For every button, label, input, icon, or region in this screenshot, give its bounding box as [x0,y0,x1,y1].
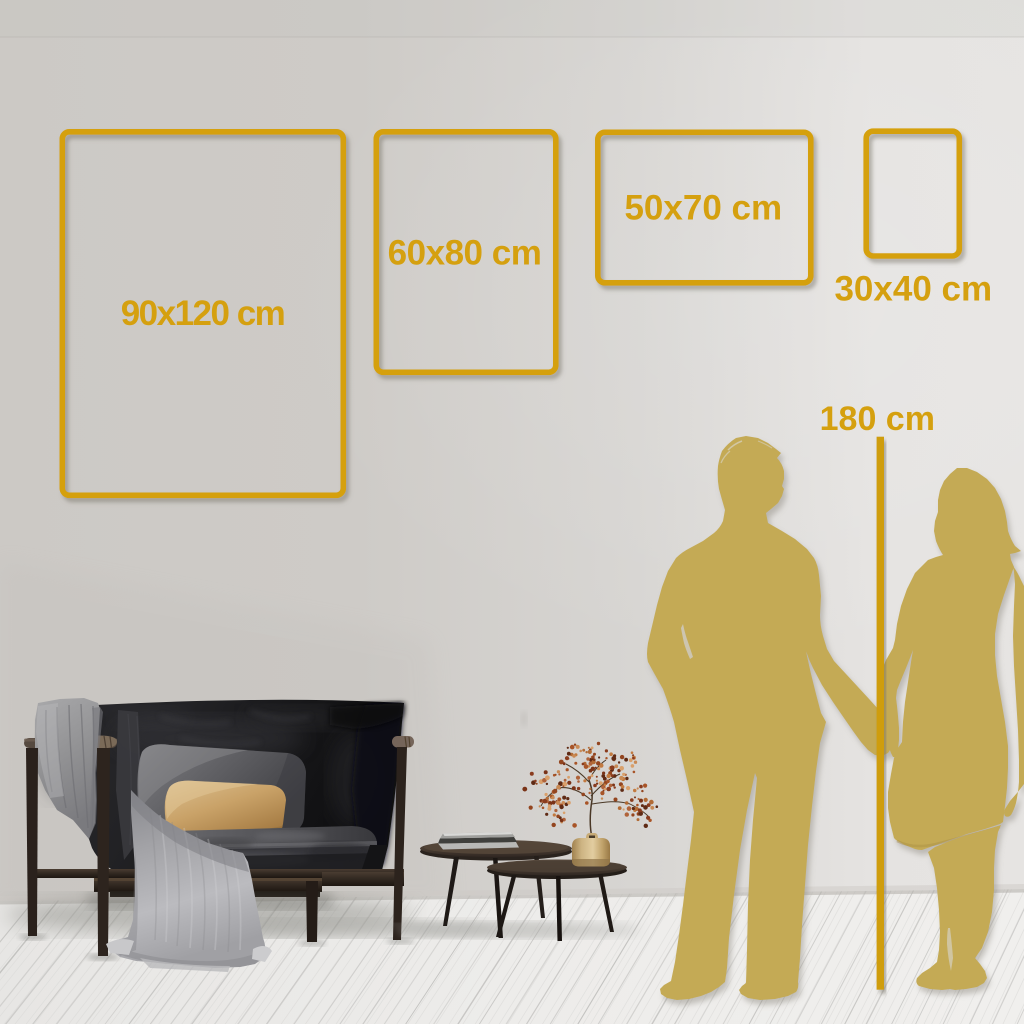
svg-text:90x120 cm: 90x120 cm [121,294,285,333]
svg-text:60x80 cm: 60x80 cm [388,234,542,273]
svg-text:180 cm: 180 cm [820,400,935,438]
svg-text:50x70 cm: 50x70 cm [624,189,782,228]
svg-text:30x40 cm: 30x40 cm [834,270,992,309]
